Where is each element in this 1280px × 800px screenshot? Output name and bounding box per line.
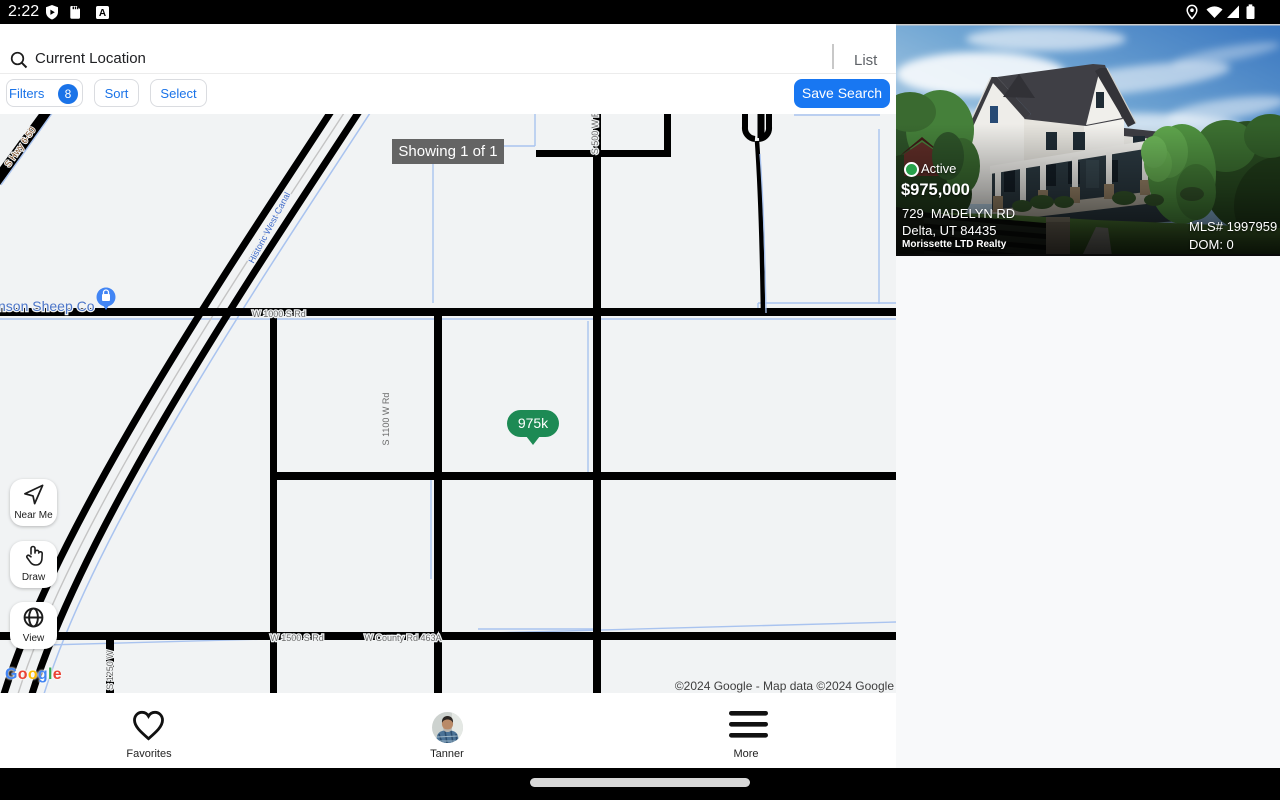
- svg-text:S 1100 W Rd: S 1100 W Rd: [381, 393, 391, 446]
- svg-text:nson Sheep Co: nson Sheep Co: [0, 298, 95, 314]
- svg-text:W 1000 S Rd: W 1000 S Rd: [252, 309, 306, 319]
- svg-text:S Hwy 6-50: S Hwy 6-50: [3, 125, 38, 169]
- svg-text:W County Rd 463A: W County Rd 463A: [364, 633, 441, 643]
- svg-text:S 1250 W: S 1250 W: [105, 650, 115, 690]
- svg-text:A: A: [99, 8, 106, 19]
- svg-text:W 1500 S Rd: W 1500 S Rd: [270, 633, 324, 643]
- svg-text:S 500 W Rd: S 500 W Rd: [590, 114, 600, 154]
